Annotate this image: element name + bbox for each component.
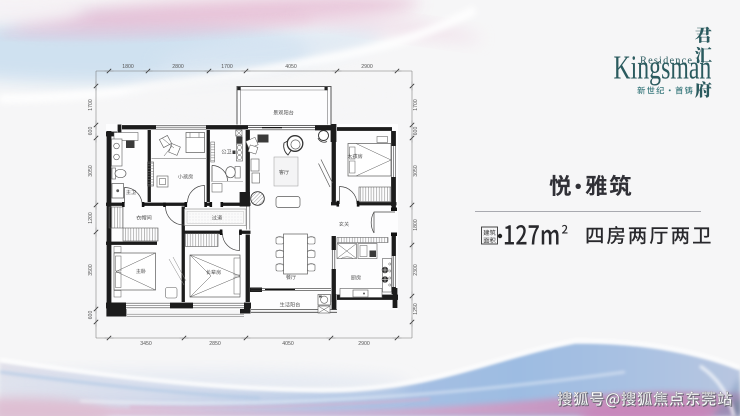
svg-text:4050: 4050 xyxy=(282,341,294,347)
svg-text:1200: 1200 xyxy=(88,212,94,224)
svg-text:4050: 4050 xyxy=(285,64,297,70)
svg-text:3500: 3500 xyxy=(88,264,94,276)
svg-text:2300: 2300 xyxy=(413,264,419,276)
svg-text:600: 600 xyxy=(88,311,94,320)
svg-text:2800: 2800 xyxy=(172,64,184,70)
svg-text:1800: 1800 xyxy=(122,64,134,70)
svg-text:3450: 3450 xyxy=(140,341,152,347)
svg-text:2900: 2900 xyxy=(358,341,370,347)
svg-text:2850: 2850 xyxy=(209,341,221,347)
svg-text:Residence: Residence xyxy=(640,56,693,67)
svg-text:3050: 3050 xyxy=(88,165,94,177)
svg-text:1250: 1250 xyxy=(413,303,419,315)
svg-text:2900: 2900 xyxy=(361,64,373,70)
svg-text:600: 600 xyxy=(88,127,94,136)
svg-text:600: 600 xyxy=(413,127,419,136)
svg-text:1700: 1700 xyxy=(221,64,233,70)
svg-text:1800: 1800 xyxy=(413,219,419,231)
svg-text:1700: 1700 xyxy=(88,99,94,111)
svg-text:1700: 1700 xyxy=(413,99,419,111)
svg-text:3050: 3050 xyxy=(413,165,419,177)
